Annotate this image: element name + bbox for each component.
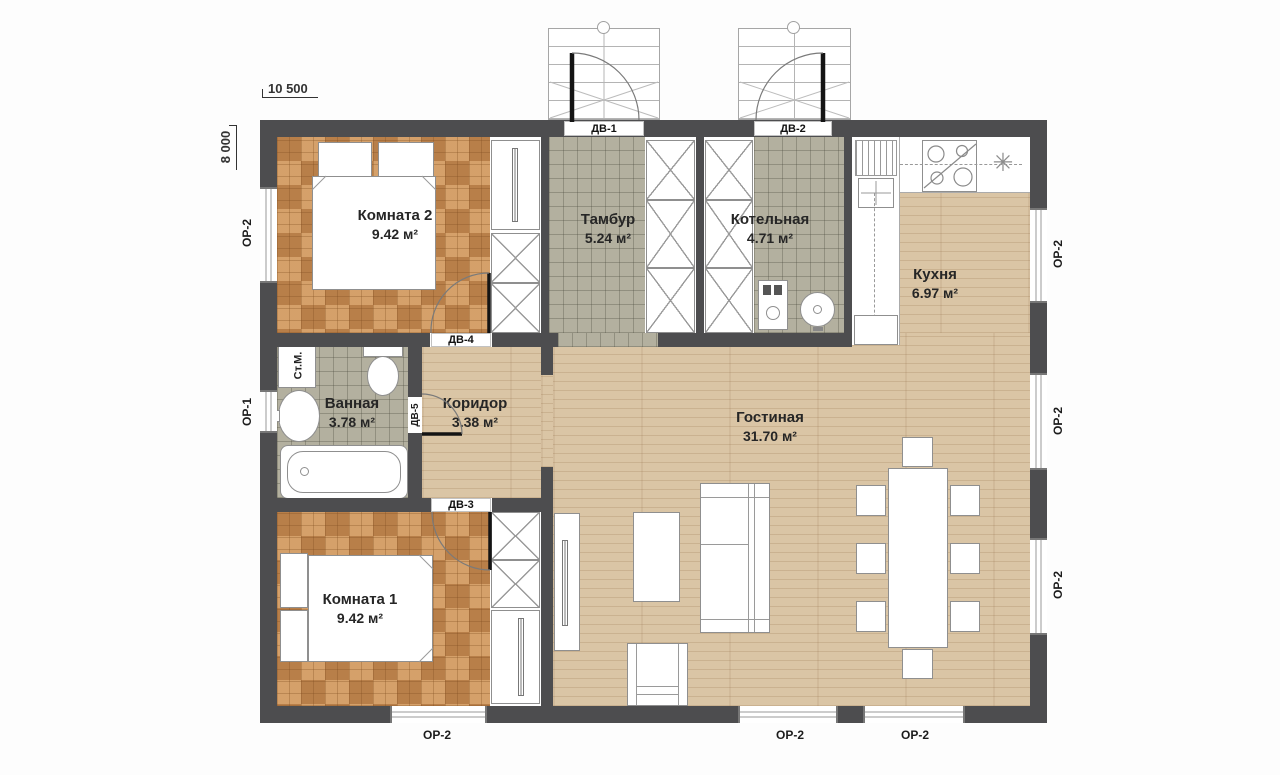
- door-arc-dv3: [432, 512, 490, 570]
- window-label-or2: ОР-2: [885, 726, 945, 744]
- bed2-fold-marks: [312, 176, 436, 190]
- stove-burners: [924, 144, 976, 188]
- door-arc-dv5: [422, 394, 462, 434]
- sink-cross: [861, 181, 891, 205]
- door-arc-dv4: [431, 273, 489, 333]
- window-label-or2: ОР-2: [1046, 401, 1070, 441]
- bed1-fold-marks: [419, 555, 433, 662]
- window-label-or2: ОР-2: [407, 726, 467, 744]
- window-label-or2: ОР-2: [760, 726, 820, 744]
- plan-linework: [260, 20, 1047, 723]
- window-label-or2: ОР-2: [1046, 565, 1070, 605]
- door-arc-dv1: [572, 53, 639, 120]
- dimension-height-tick: [229, 125, 237, 126]
- window-label-or2: ОР-2: [235, 213, 259, 253]
- door-arc-dv2: [756, 53, 823, 120]
- window-label-or2: ОР-2: [1046, 234, 1070, 274]
- floor-plan: ✳ Ст.М.: [260, 120, 1047, 723]
- dimension-height: 8 000: [218, 125, 234, 169]
- window-label-or1: ОР-1: [235, 392, 259, 432]
- dimension-height-line: [236, 125, 237, 170]
